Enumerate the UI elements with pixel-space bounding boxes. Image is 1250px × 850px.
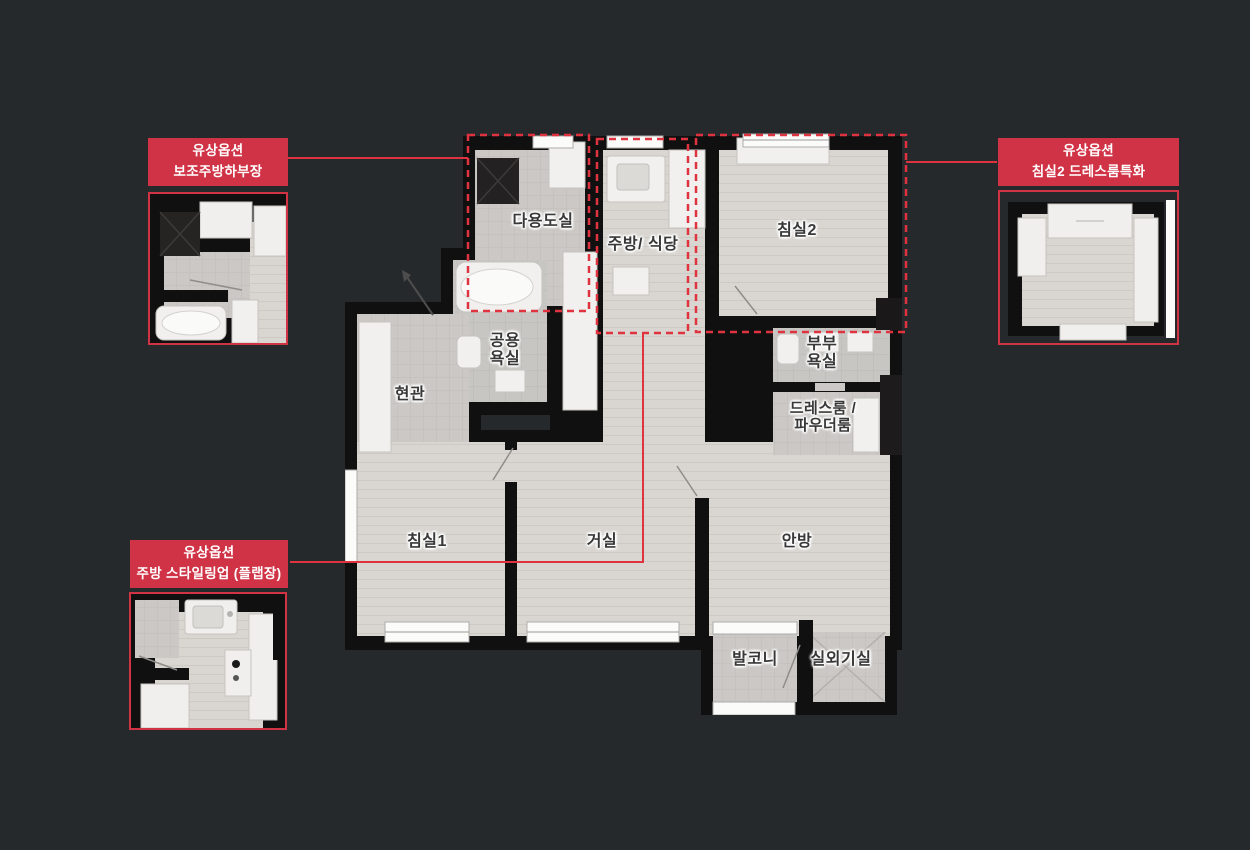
toilet (457, 336, 481, 368)
callout-aux-kitchen-title: 유상옵션 보조주방하부장 (148, 138, 288, 186)
room-label-bedroom1: 침실1 (407, 533, 447, 551)
utility-closet (477, 158, 519, 204)
room-label-outdoor-unit: 실외기실 (811, 651, 872, 669)
dressroom-door-gap (815, 383, 845, 391)
room-label-master-bath: 부부 욕실 (807, 336, 837, 373)
callout-kitchen-styling-image (129, 592, 287, 730)
master-basin2 (847, 332, 873, 352)
callout-bedroom2-image (998, 190, 1179, 345)
utility-counter (549, 142, 585, 188)
callout-aux-kitchen-image (148, 192, 288, 345)
room-label-bedroom2: 침실2 (777, 222, 817, 240)
room-label-entrance: 현관 (395, 386, 425, 404)
floor-plan: 다용도실 주방/ 식당 침실2 공용 욕실 현관 부부 욕실 드레스룸 / 파우… (345, 130, 912, 715)
room-label-balcony: 발코니 (732, 651, 778, 669)
callout-aux-kitchen-line2: 보조주방하부장 (173, 162, 262, 183)
room-label-common-bath: 공용 욕실 (490, 333, 520, 370)
master-toilet (777, 334, 799, 364)
sink-basin (617, 164, 649, 190)
room-label-dressroom: 드레스룸 / 파우더룸 (790, 400, 857, 435)
kitchen-styling-detail-drawing (131, 594, 285, 728)
kitchen-counter (669, 150, 705, 228)
callout-bedroom2-line2: 침실2 드레스룸특화 (1032, 162, 1146, 183)
entrance-closet (359, 322, 391, 452)
room-label-kitchen-dining: 주방/ 식당 (608, 236, 679, 254)
hall-cabinet (563, 252, 597, 410)
room-label-master-bedroom: 안방 (782, 533, 812, 551)
dresser (853, 398, 879, 452)
aux-kitchen-detail-drawing (150, 194, 286, 343)
room-label-utility: 다용도실 (513, 213, 574, 231)
callout-aux-kitchen-line1: 유상옵션 (193, 141, 244, 162)
callout-kitchen-styling-line1: 유상옵션 (184, 543, 235, 564)
room-label-living: 거실 (587, 533, 617, 551)
kitchen-island (613, 267, 649, 295)
callout-bedroom2-line1: 유상옵션 (1063, 141, 1114, 162)
washbasin (495, 370, 525, 392)
bedroom2-detail-drawing (1000, 192, 1177, 343)
callout-kitchen-styling-line2: 주방 스타일링업 (플랩장) (137, 564, 282, 585)
floor-plan-page: 다용도실 주방/ 식당 침실2 공용 욕실 현관 부부 욕실 드레스룸 / 파우… (0, 0, 1250, 850)
callout-kitchen-styling-title: 유상옵션 주방 스타일링업 (플랩장) (130, 540, 288, 588)
callout-bedroom2-title: 유상옵션 침실2 드레스룸특화 (998, 138, 1179, 186)
bathtub-inner (461, 269, 533, 305)
